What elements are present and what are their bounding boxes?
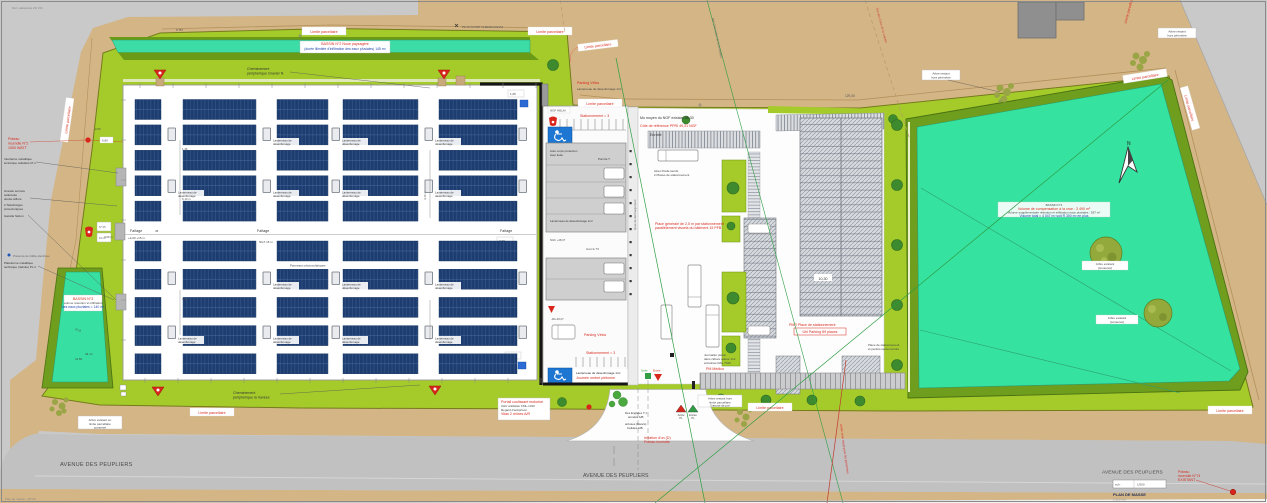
- svg-text:PLUS COURT CHEMIN DANAII: PLUS COURT CHEMIN DANAII: [462, 25, 503, 29]
- svg-text:Côte de référence PPRI 49,31 N: Côte de référence PPRI 49,31 NGF: [640, 124, 698, 128]
- svg-text:Uhl Parking 89 places: Uhl Parking 89 places: [803, 330, 838, 334]
- svg-text:6.757: 6.757: [176, 28, 183, 32]
- svg-text:avec liette: avec liette: [550, 153, 563, 157]
- svg-text:désenfumage: désenfumage: [342, 142, 360, 146]
- svg-text:41,50: 41,50: [75, 357, 82, 361]
- svg-text:désenfumage: désenfumage: [342, 194, 360, 198]
- svg-text:2,00: 2,00: [95, 127, 101, 131]
- svg-text:doube téflure: doube téflure: [4, 197, 22, 201]
- svg-text:désenfumage: désenfumage: [273, 340, 291, 344]
- svg-text:AVENUE DES PEUPLIERS: AVENUE DES PEUPLIERS: [1102, 470, 1163, 476]
- svg-text:désenfumage: désenfumage: [273, 286, 291, 290]
- svg-text:PLAN DE MASSE: PLAN DE MASSE: [1113, 492, 1146, 497]
- svg-text:Hors E.T.5: Hors E.T.5: [586, 247, 599, 251]
- svg-text:désenfumage: désenfumage: [435, 142, 453, 146]
- svg-text:technique (réduite) PL 2: technique (réduite) PL 2: [4, 265, 36, 269]
- svg-text:incendie N°2: incendie N°2: [8, 142, 28, 146]
- svg-text:désenfumage: désenfumage: [273, 194, 291, 198]
- svg-text:PM Médico: PM Médico: [706, 367, 724, 371]
- svg-text:parallèlement visuels du bâtim: parallèlement visuels du bâtiment 15 PFB: [655, 226, 722, 230]
- svg-text:Stationnement = 3: Stationnement = 3: [580, 114, 609, 118]
- svg-text:Limite parcellaire: Limite parcellaire: [586, 102, 613, 106]
- svg-text:Parking Vélos: Parking Vélos: [584, 333, 606, 337]
- svg-text:1000 WATT: 1000 WATT: [8, 146, 28, 150]
- svg-text:périphérique la travées: périphérique la travées: [233, 396, 270, 400]
- svg-text:Volume total = 4 047 m³ soit R: Volume total = 4 047 m³ soit R 300 m³ en…: [1020, 214, 1089, 218]
- svg-text:AVENUE DES PEUPLIERS: AVENUE DES PEUPLIERS: [583, 473, 649, 479]
- svg-text:Journée ombré piétonne: Journée ombré piétonne: [576, 376, 615, 380]
- svg-text:des eaux pluviales = 140 m³: des eaux pluviales = 140 m³: [62, 305, 105, 309]
- svg-text:Présence de Câble électrique: Présence de Câble électrique: [13, 254, 50, 258]
- svg-text:protectoriques: protectoriques: [4, 207, 24, 211]
- svg-text:désenfumage: désenfumage: [435, 194, 453, 198]
- svg-text:Limite parcellaire: Limite parcellaire: [198, 411, 225, 415]
- svg-text:Cellules A/B: Cellules A/B: [627, 426, 643, 430]
- svg-text:Quai de déchargement: Quai de déchargement: [633, 199, 637, 230]
- svg-text:1,35: 1,35: [182, 297, 188, 301]
- svg-text:2 Places de stationnement: 2 Places de stationnement: [654, 173, 690, 177]
- svg-text:3,00 m: 3,00 m: [104, 235, 113, 239]
- svg-text:Panneaux photovoltaïques: Panneaux photovoltaïques: [290, 264, 326, 268]
- svg-text:PL: PL: [691, 416, 695, 420]
- svg-text:Lanterneau de désenfumage 1m²: Lanterneau de désenfumage 1m²: [550, 219, 593, 223]
- svg-text:Lanterneau de désenfumage 1m²: Lanterneau de désenfumage 1m²: [577, 87, 621, 91]
- svg-text:Poteau: Poteau: [8, 137, 19, 141]
- svg-text:Lanterneau de désenfumage 1m²: Lanterneau de désenfumage 1m²: [576, 371, 620, 375]
- svg-text:-90+48,07: -90+48,07: [551, 317, 564, 321]
- svg-text:entraînée RAL 7016: entraînée RAL 7016: [704, 361, 731, 365]
- svg-text:désenfumage: désenfumage: [435, 286, 453, 290]
- svg-text:1,05: 1,05: [510, 92, 516, 96]
- svg-text:Cheminement: Cheminement: [233, 391, 255, 395]
- svg-text:Point E.T.: Point E.T.: [598, 157, 611, 161]
- svg-text:AVENUE DES PEUPLIERS: AVENUE DES PEUPLIERS: [60, 462, 133, 468]
- svg-text:désenfumage: désenfumage: [435, 340, 453, 344]
- svg-text:Réf. cadastrale ZD 151: Réf. cadastrale ZD 151: [12, 6, 43, 10]
- svg-text:Enrobé: Enrobé: [650, 133, 662, 137]
- svg-text:Stationnement = 3: Stationnement = 3: [586, 351, 615, 355]
- svg-text:Plan de masse - DP 02: Plan de masse - DP 02: [5, 497, 36, 501]
- svg-text:désenfumage: désenfumage: [342, 286, 360, 290]
- svg-text:désenfumage: désenfumage: [342, 340, 360, 344]
- svg-text:Parking Vélos: Parking Vélos: [577, 81, 599, 85]
- svg-text:N: N: [1127, 141, 1131, 147]
- svg-text:Poteau incendie: Poteau incendie: [644, 440, 670, 444]
- svg-text:Limite parcellaire: Limite parcellaire: [1216, 409, 1243, 413]
- svg-text:(durée illimitée d'infiltratio: (durée illimitée d'infiltration des eaux…: [304, 47, 386, 51]
- svg-text:1/500: 1/500: [1137, 483, 1145, 487]
- svg-text:6,10 m: 6,10 m: [182, 197, 191, 201]
- svg-text:NGF +48,07: NGF +48,07: [550, 238, 566, 242]
- svg-text:et perdus-venta carrure: et perdus-venta carrure: [868, 347, 900, 351]
- svg-text:BASSIN N°2 Noue paysagère: BASSIN N°2 Noue paysagère: [321, 42, 369, 46]
- svg-text:Faîtage: Faîtage: [500, 229, 512, 233]
- svg-text:Faîtage: Faîtage: [130, 229, 142, 233]
- svg-text:Faîtage: Faîtage: [257, 229, 269, 233]
- svg-text:hors périmètre: hors périmètre: [931, 76, 951, 80]
- svg-text:Entrée: Entrée: [653, 370, 661, 373]
- svg-text:(conservé): (conservé): [1098, 266, 1112, 270]
- svg-text:NGF HELM: NGF HELM: [550, 109, 566, 113]
- svg-text:Vitas 2 relices A/R: Vitas 2 relices A/R: [501, 412, 530, 416]
- svg-text:EXISTANT: EXISTANT: [1178, 478, 1196, 482]
- svg-text:PMR Place de stationnement: PMR Place de stationnement: [789, 323, 836, 327]
- svg-text:ech :: ech :: [1115, 483, 1122, 487]
- svg-text:129,30: 129,30: [845, 94, 855, 98]
- svg-text:Limite parcellaire: Limite parcellaire: [536, 30, 563, 34]
- svg-text:PL: PL: [679, 416, 683, 420]
- svg-text:désenfumage: désenfumage: [273, 142, 291, 146]
- svg-text:annelés A/B: annelés A/B: [628, 415, 643, 419]
- svg-text:(conservé): (conservé): [1110, 320, 1124, 324]
- svg-text:désenfumage: désenfumage: [178, 340, 196, 344]
- svg-text:périphérique Gravier N: périphérique Gravier N: [247, 72, 284, 76]
- svg-text:N° 05: N° 05: [99, 225, 106, 229]
- svg-text:Mu moyen du NGF existant 48,30: Mu moyen du NGF existant 48,30: [640, 116, 694, 120]
- svg-text:Limite parcellaire: Limite parcellaire: [310, 30, 337, 34]
- svg-text:Garrote de pré: Garrote de pré: [710, 404, 730, 408]
- svg-text:6,80: 6,80: [102, 139, 108, 143]
- svg-text:+4,00 +15 m: +4,00 +15 m: [128, 236, 145, 240]
- svg-text:hors périmètre: hors périmètre: [1167, 34, 1187, 38]
- svg-text:45: 45: [155, 229, 159, 233]
- svg-text:conservé: conservé: [94, 426, 107, 430]
- svg-text:10,30: 10,30: [819, 277, 828, 281]
- svg-text:Sortie: Sortie: [641, 370, 648, 373]
- svg-text:4,10 m: 4,10 m: [423, 191, 427, 200]
- svg-text:NGT 15 m: NGT 15 m: [259, 240, 273, 244]
- svg-text:1:500 éch: 1:500 éch: [1113, 498, 1127, 502]
- svg-text:44 m²: 44 m²: [85, 352, 93, 356]
- svg-text:lectorique cellulaire Pt 1: lectorique cellulaire Pt 1: [4, 161, 36, 165]
- svg-text:Cheminement: Cheminement: [247, 67, 269, 71]
- svg-text:1,35: 1,35: [182, 147, 188, 151]
- svg-text:Gazelle Sébon: Gazelle Sébon: [4, 214, 24, 218]
